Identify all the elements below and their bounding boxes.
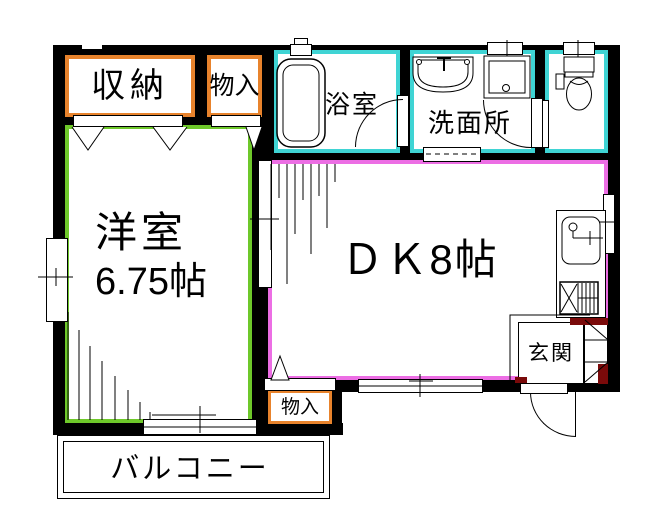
- label-closet-top: 物入: [207, 55, 262, 117]
- entrance-door-icon: [530, 392, 576, 437]
- window-icon: [563, 42, 595, 55]
- label-closet-bottom: 物入: [268, 395, 332, 419]
- sliding-door-icon: [258, 160, 272, 288]
- closet-front: [264, 378, 336, 391]
- kitchen-counter: [556, 210, 606, 318]
- label-storage: 収納: [65, 55, 195, 117]
- floorplan: 収納 物入 浴室 洗面所 洋室 6.75帖 ＤＫ8帖 玄関 物入 バルコニー: [0, 0, 669, 531]
- label-bathroom: 浴室: [320, 91, 384, 119]
- window-icon: [46, 238, 68, 322]
- label-washroom: 洗面所: [405, 108, 535, 138]
- label-dk: ＤＫ8帖: [310, 236, 530, 284]
- room-toilet: [545, 50, 608, 153]
- window-icon: [487, 42, 523, 55]
- entrance-step: [520, 383, 568, 394]
- entrance-accent: [598, 364, 608, 384]
- label-western-room: 洋室: [95, 210, 245, 256]
- label-balcony: バルコニー: [80, 452, 300, 486]
- entrance-accent: [570, 318, 608, 325]
- window-icon: [290, 44, 312, 56]
- label-western-room-size: 6.75帖: [95, 260, 255, 304]
- wall-notch: [82, 44, 102, 49]
- window-icon: [358, 379, 483, 393]
- label-entrance: 玄関: [518, 340, 584, 366]
- sliding-door-icon: [423, 147, 481, 162]
- window-icon: [294, 38, 308, 45]
- window-icon: [143, 419, 257, 435]
